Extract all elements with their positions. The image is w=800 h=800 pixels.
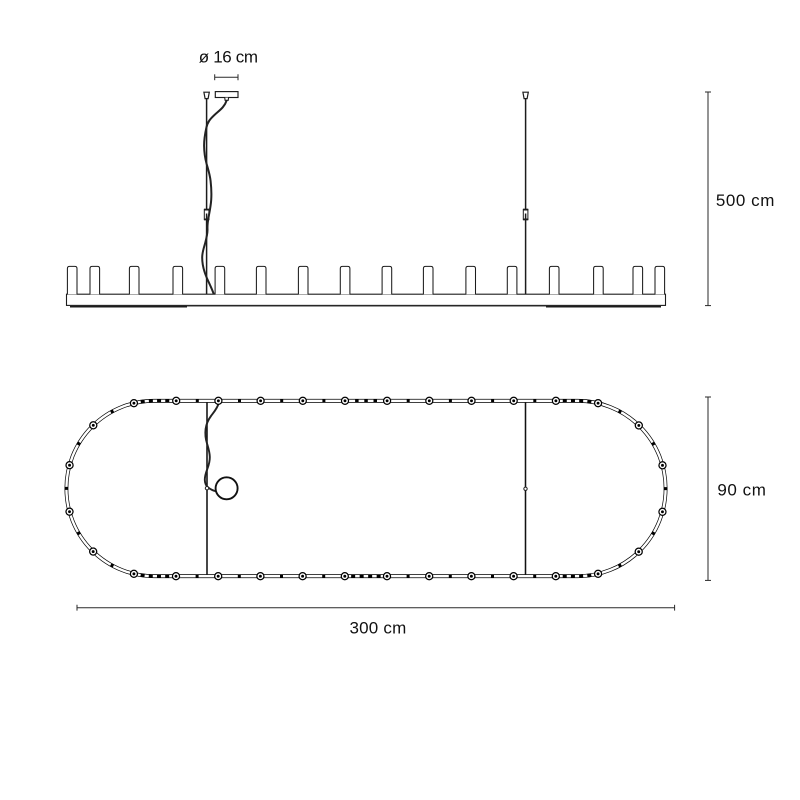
svg-text:ø 16 cm: ø 16 cm [199,48,258,67]
svg-text:300 cm: 300 cm [350,619,407,638]
svg-text:90 cm: 90 cm [717,480,766,499]
svg-text:500 cm: 500 cm [716,191,775,210]
